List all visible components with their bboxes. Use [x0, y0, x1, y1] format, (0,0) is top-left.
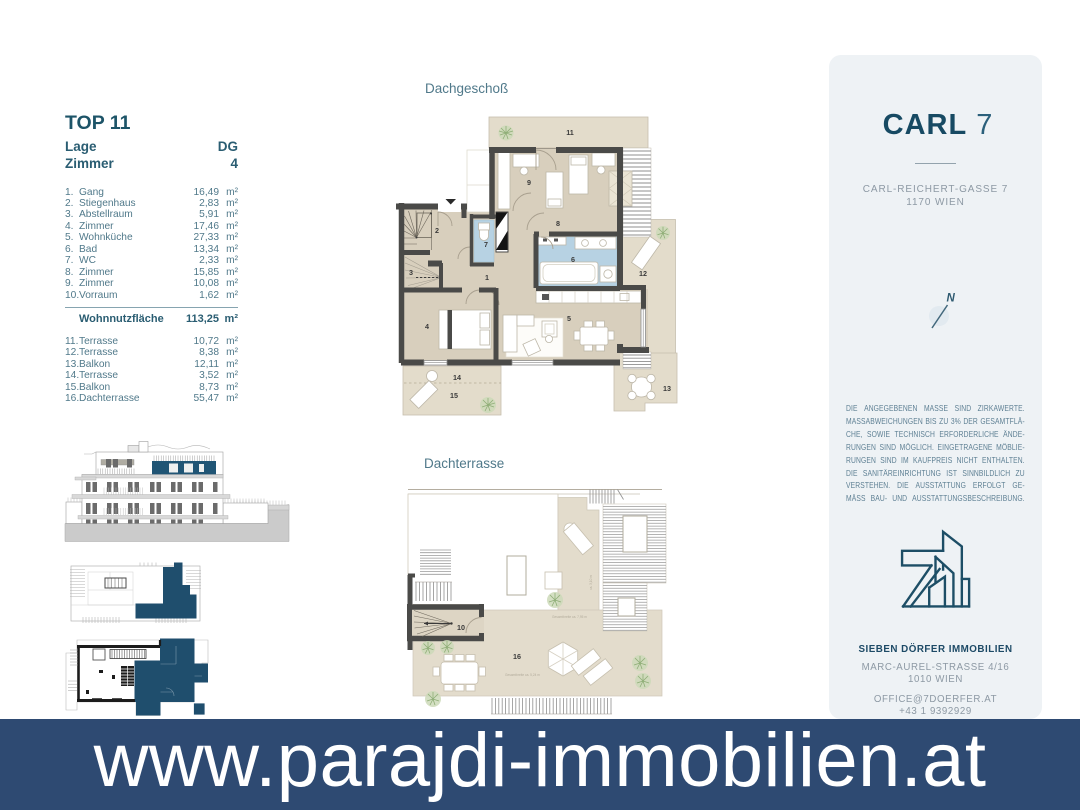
svg-text:13: 13 [663, 384, 671, 393]
svg-text:11: 11 [566, 128, 574, 137]
svg-text:ca. 3,10 m: ca. 3,10 m [589, 575, 593, 590]
svg-text:N: N [947, 293, 956, 305]
svg-text:14: 14 [453, 373, 461, 382]
svg-text:8: 8 [556, 219, 560, 228]
svg-text:7: 7 [484, 240, 488, 249]
svg-text:9: 9 [527, 178, 531, 187]
svg-text:2: 2 [435, 226, 439, 235]
svg-text:5: 5 [567, 314, 571, 323]
svg-text:12: 12 [639, 269, 647, 278]
svg-text:1: 1 [485, 273, 489, 282]
svg-text:4: 4 [425, 322, 429, 331]
svg-text:3: 3 [409, 268, 413, 277]
svg-text:Gesamtbreite ca. 5,24 m: Gesamtbreite ca. 5,24 m [505, 673, 540, 677]
svg-text:6: 6 [571, 255, 575, 264]
svg-text:16: 16 [513, 652, 521, 661]
svg-text:10: 10 [457, 623, 465, 632]
svg-text:Gesamtbreite ca. 7,95 m: Gesamtbreite ca. 7,95 m [552, 615, 587, 619]
svg-text:15: 15 [450, 391, 458, 400]
